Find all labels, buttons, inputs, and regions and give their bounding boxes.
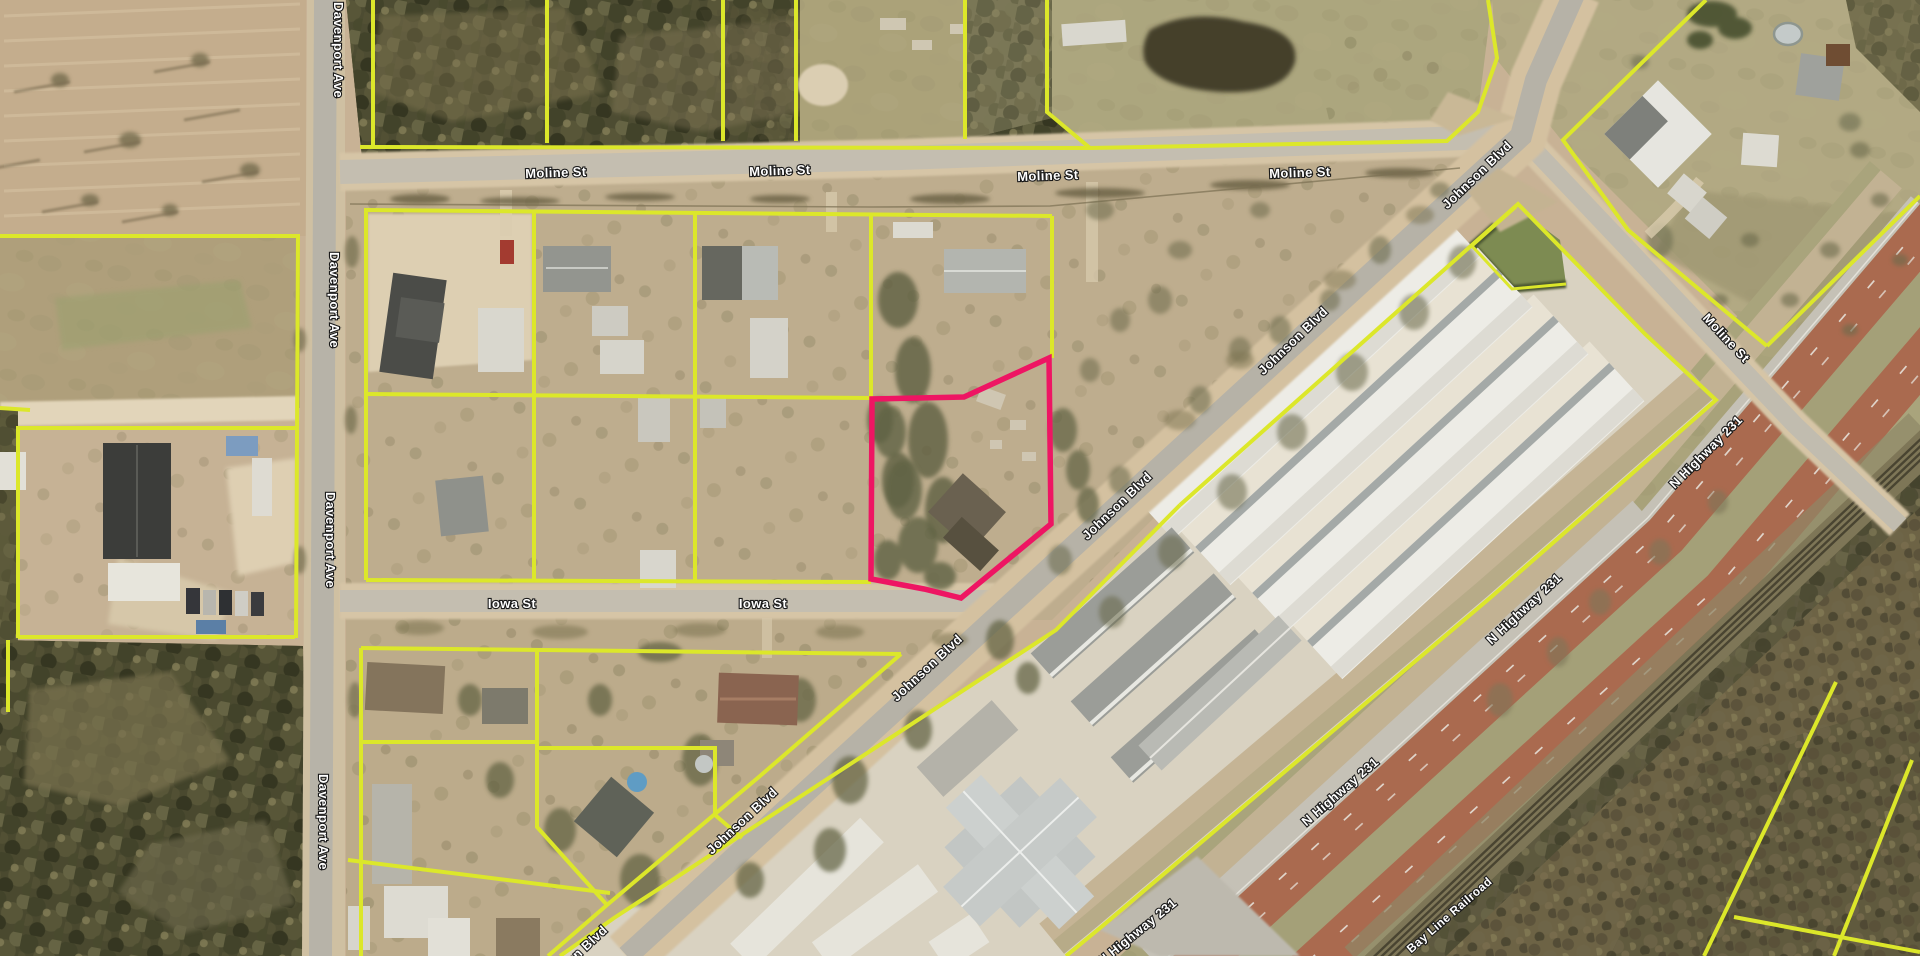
svg-text:Davenport Ave: Davenport Ave bbox=[323, 492, 338, 588]
svg-text:Iowa St: Iowa St bbox=[739, 596, 788, 611]
svg-text:Moline St: Moline St bbox=[1017, 167, 1079, 184]
svg-text:Moline St: Moline St bbox=[749, 162, 811, 179]
svg-text:Davenport Ave: Davenport Ave bbox=[331, 2, 346, 98]
svg-text:Davenport Ave: Davenport Ave bbox=[316, 774, 331, 870]
svg-text:Moline St: Moline St bbox=[1269, 164, 1331, 181]
svg-text:Davenport Ave: Davenport Ave bbox=[327, 252, 342, 348]
svg-text:Moline St: Moline St bbox=[525, 164, 587, 181]
svg-text:Iowa St: Iowa St bbox=[488, 596, 537, 611]
